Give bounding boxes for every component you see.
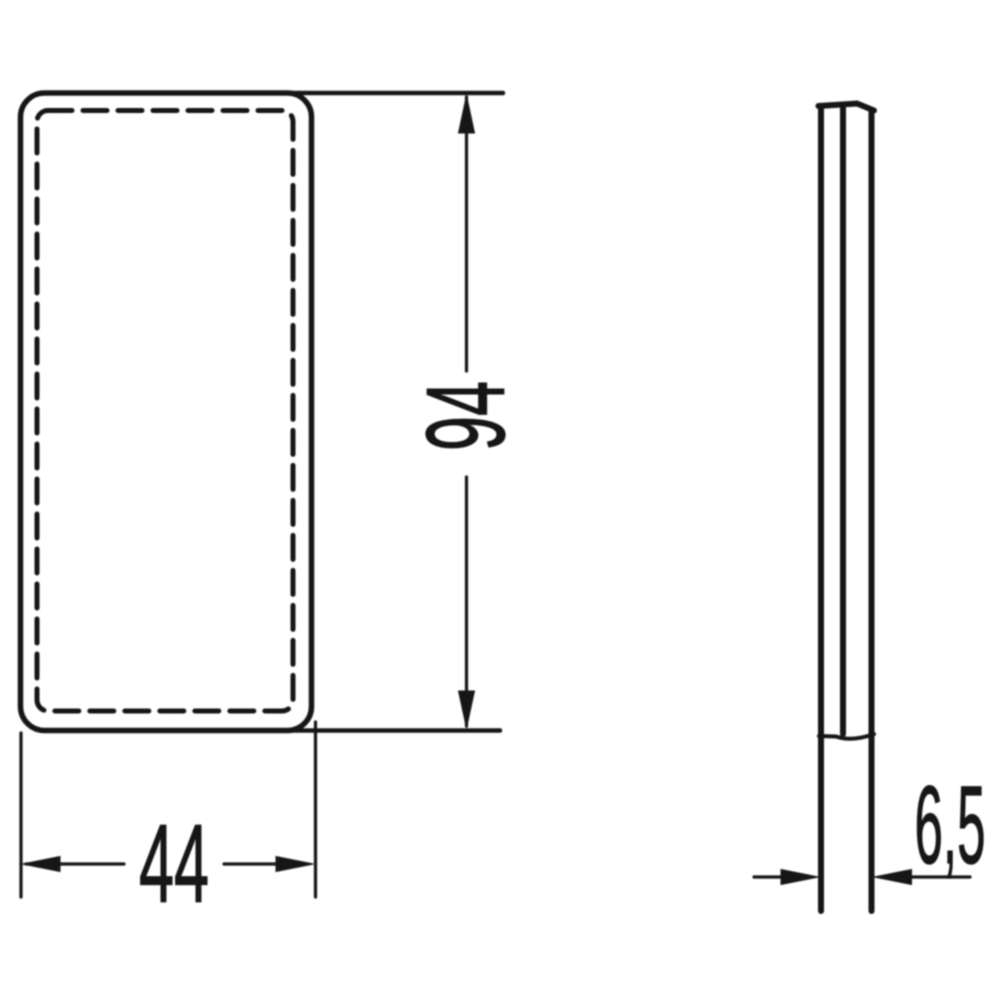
svg-text:44: 44 — [139, 802, 209, 926]
svg-text:6,5: 6,5 — [915, 764, 986, 887]
svg-text:94: 94 — [404, 381, 528, 451]
